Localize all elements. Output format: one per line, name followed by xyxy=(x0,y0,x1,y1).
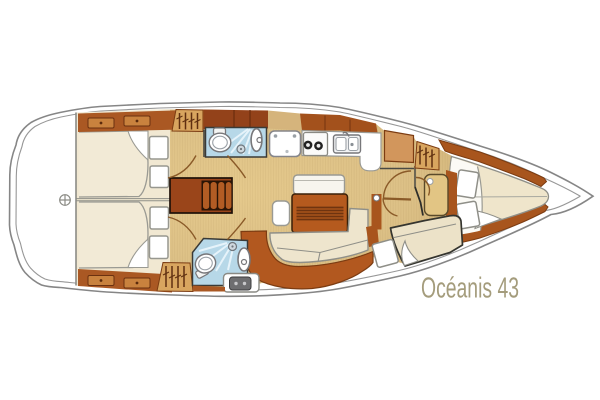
svg-text:Océanis 43: Océanis 43 xyxy=(421,273,519,305)
